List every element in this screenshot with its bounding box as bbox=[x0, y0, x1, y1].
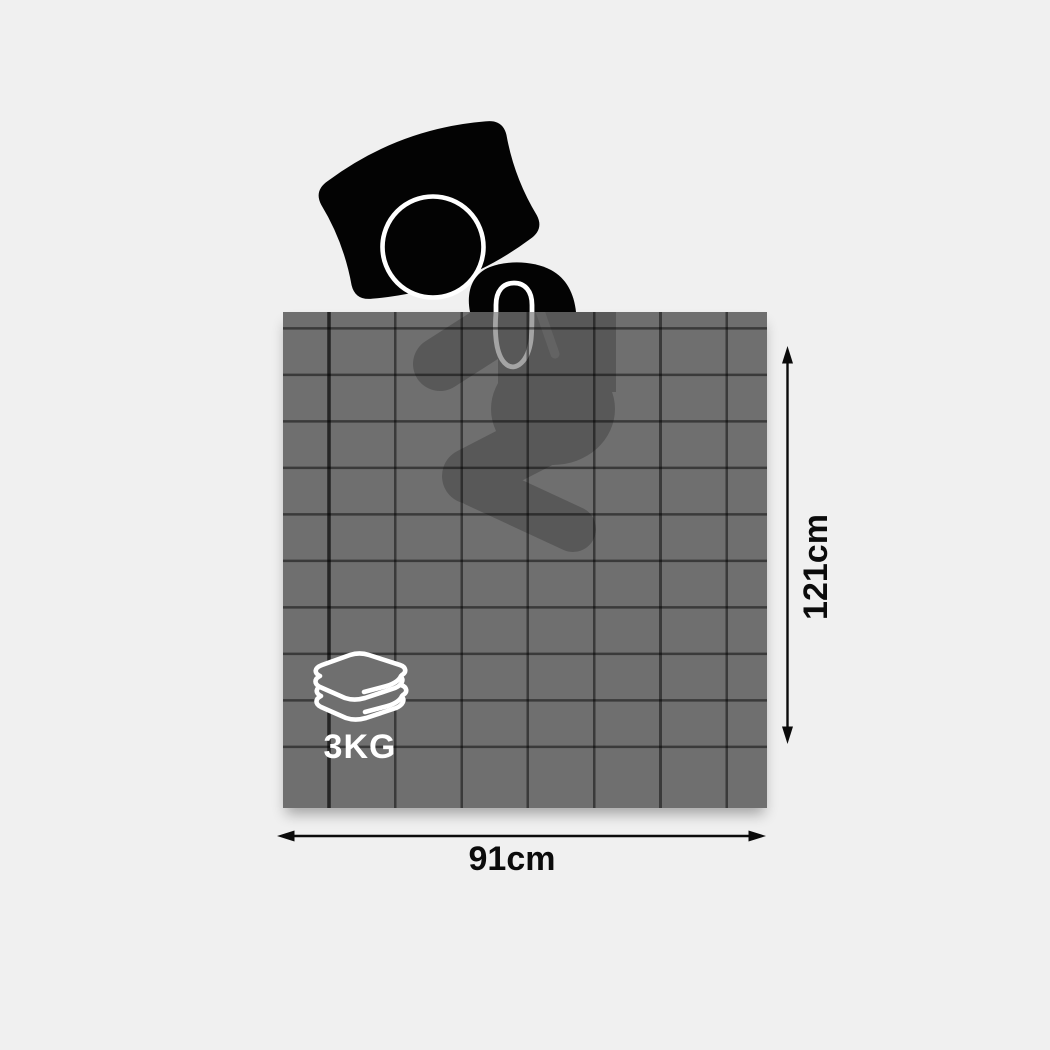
head-shape bbox=[383, 197, 484, 298]
width-arrow bbox=[277, 831, 766, 842]
height-arrow bbox=[782, 346, 793, 744]
pillow-shape bbox=[310, 105, 549, 315]
weighted-blanket-size-diagram: 3KG 121cm 91cm bbox=[0, 0, 1050, 1050]
width-dimension-label: 91cm bbox=[469, 840, 556, 878]
blanket-panel: 3KG bbox=[283, 312, 767, 808]
thumb-outline bbox=[496, 283, 532, 314]
height-dimension-label: 121cm bbox=[797, 514, 835, 620]
hand-shape bbox=[469, 262, 576, 312]
weight-label: 3KG bbox=[300, 727, 420, 767]
